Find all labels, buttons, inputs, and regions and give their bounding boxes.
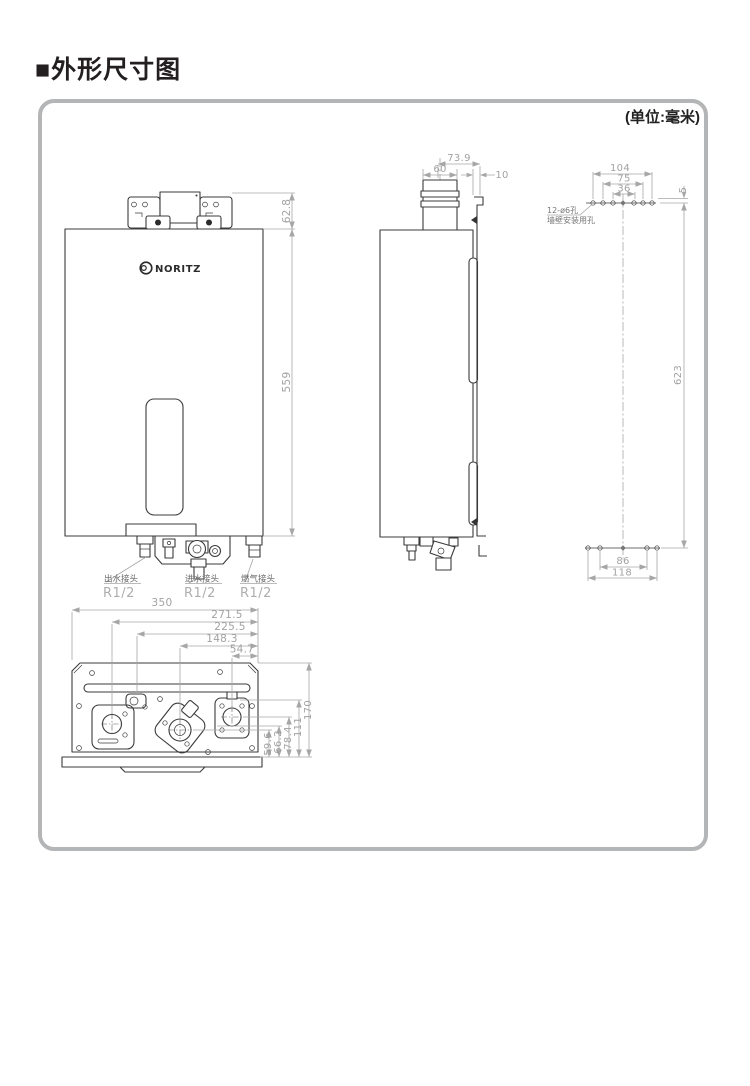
heater-body-side <box>380 230 473 537</box>
dim-edge-offset: 5 <box>678 187 689 194</box>
dim-body-height: 559 <box>281 372 293 393</box>
rear-view: 12-ø6孔 墙壁安装用孔 104 75 36 5 623 86 118 <box>547 163 689 581</box>
dim-width: 350 <box>152 597 173 609</box>
dim-bracket-height: 62.8 <box>281 199 293 224</box>
gas-label: 燃气接头 <box>241 574 276 585</box>
side-view: 73.9 60 10 <box>380 153 509 570</box>
heater-body-front <box>65 229 263 536</box>
dim-pos-2: 225.5 <box>214 621 246 633</box>
bottom-hole-row <box>585 545 660 551</box>
dim-wall-gap: 10 <box>495 170 508 181</box>
rear-dimensions: 104 75 36 5 623 86 118 <box>588 163 689 581</box>
gas-size: R1/2 <box>240 586 272 601</box>
outlet-size: R1/2 <box>103 586 135 601</box>
mounting-note: 12-ø6孔 墙壁安装用孔 <box>547 205 595 226</box>
dim-pos-4: 54.7 <box>230 644 255 656</box>
mounting-note-line1: 12-ø6孔 <box>547 206 578 215</box>
inlet-size: R1/2 <box>184 586 216 601</box>
dim-mount-height: 623 <box>673 365 684 385</box>
front-view: NORITZ <box>65 192 295 601</box>
mounting-note-line2: 墙壁安装用孔 <box>547 215 595 225</box>
dimension-drawing: NORITZ <box>0 0 750 1086</box>
dim-top-outer: 104 <box>610 163 630 174</box>
drain-clamp-bottom <box>126 694 147 709</box>
brand-logo-text: NORITZ <box>155 264 201 275</box>
dim-flue-width: 60 <box>433 164 446 175</box>
top-bracket <box>128 192 232 229</box>
dim-pos-1: 271.5 <box>211 609 243 621</box>
dim-bottom-outer: 118 <box>612 568 632 579</box>
outlet-assembly-bottom <box>92 705 134 749</box>
side-bottom-fittings <box>404 537 458 570</box>
dim-top-inner: 36 <box>617 184 630 195</box>
inlet-label: 进水接头 <box>185 574 220 585</box>
dim-flue-offset: 73.9 <box>447 153 470 164</box>
bottom-view: 350 271.5 225.5 148.3 54.7 59.6 66.2 78.… <box>62 597 314 772</box>
dim-depth: 170 <box>303 700 314 720</box>
dim-bottom-inner: 86 <box>616 556 629 567</box>
top-hole-row <box>586 200 656 206</box>
outlet-label: 出水接头 <box>104 574 139 585</box>
